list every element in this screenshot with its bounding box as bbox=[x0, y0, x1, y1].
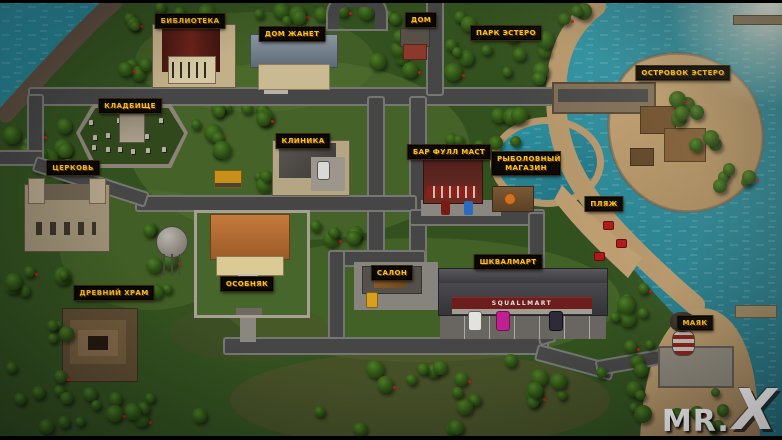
palm-tree-icon bbox=[454, 372, 468, 386]
map-label-bar-full-mast[interactable]: БАР ФУЛЛ МАСТ bbox=[408, 145, 490, 159]
palm-tree-icon bbox=[638, 308, 648, 318]
logo-x-text: X bbox=[733, 389, 776, 434]
palm-tree-icon bbox=[57, 143, 72, 158]
palm-tree-icon bbox=[617, 296, 635, 314]
palm-tree-icon bbox=[456, 398, 473, 415]
palm-tree-icon bbox=[256, 111, 271, 126]
flower-icon bbox=[649, 290, 652, 293]
palm-tree-icon bbox=[377, 376, 393, 392]
map-label-ancient-temple[interactable]: ДРЕВНИЙ ХРАМ bbox=[74, 286, 153, 300]
dark-car bbox=[549, 311, 563, 331]
palm-tree-icon bbox=[703, 130, 719, 146]
palm-tree-icon bbox=[118, 62, 132, 76]
palm-tree-icon bbox=[454, 135, 464, 145]
palm-tree-icon bbox=[292, 10, 306, 24]
palm-tree-icon bbox=[417, 363, 429, 375]
map-label-house[interactable]: ДОМ bbox=[406, 13, 436, 27]
red-car bbox=[441, 201, 450, 215]
blue-car bbox=[464, 201, 473, 215]
palm-tree-icon bbox=[634, 405, 652, 423]
bridge-road bbox=[558, 89, 648, 102]
palm-tree-icon bbox=[75, 417, 84, 426]
palm-tree-icon bbox=[83, 387, 97, 401]
tombstone-icon bbox=[146, 148, 150, 153]
map-label-park-estero[interactable]: ПАРК ЭСТЕРО bbox=[471, 26, 541, 40]
map-label-fishing-shop[interactable]: РЫБОЛОВНЫЙ МАГАЗИН bbox=[492, 152, 560, 175]
mansion-gate bbox=[236, 308, 262, 315]
red-buggy bbox=[603, 221, 614, 230]
mr-x-logo: MR. X bbox=[662, 389, 776, 434]
flower-icon bbox=[637, 348, 640, 351]
palm-tree-icon bbox=[310, 220, 321, 231]
palm-tree-icon bbox=[191, 119, 201, 129]
flower-icon bbox=[149, 421, 152, 424]
tombstone-icon bbox=[162, 147, 166, 152]
palm-tree-icon bbox=[452, 47, 462, 57]
palm-tree-icon bbox=[571, 5, 583, 17]
bulldozer bbox=[214, 170, 242, 188]
map-label-lighthouse[interactable]: МАЯК bbox=[677, 316, 712, 330]
tombstone-icon bbox=[93, 135, 97, 140]
tombstone-icon bbox=[89, 120, 93, 125]
letterbox-bottom bbox=[0, 436, 782, 440]
flower-icon bbox=[123, 415, 126, 418]
palm-tree-icon bbox=[448, 420, 463, 435]
palm-tree-icon bbox=[3, 126, 20, 143]
flower-icon bbox=[462, 74, 465, 77]
palm-tree-icon bbox=[124, 403, 140, 419]
palm-tree-icon bbox=[635, 390, 645, 400]
road-top-curve bbox=[328, 0, 386, 29]
palm-tree-icon bbox=[406, 374, 417, 385]
mansion-roof bbox=[210, 214, 290, 260]
palm-tree-icon bbox=[192, 408, 207, 423]
palm-tree-icon bbox=[558, 13, 571, 26]
road-west-vertical bbox=[29, 96, 42, 158]
letterbox-top bbox=[0, 0, 782, 3]
palm-tree-icon bbox=[557, 390, 566, 399]
map-label-cemetery[interactable]: КЛАДБИЩЕ bbox=[99, 99, 161, 113]
palm-tree-icon bbox=[444, 63, 462, 81]
palm-tree-icon bbox=[6, 362, 17, 373]
church-tower-left bbox=[28, 178, 45, 204]
palm-tree-icon bbox=[213, 105, 226, 118]
palm-tree-icon bbox=[328, 227, 339, 238]
palm-tree-icon bbox=[241, 103, 252, 114]
road-center-vertical-west bbox=[369, 98, 383, 264]
palm-tree-icon bbox=[346, 231, 360, 245]
palm-tree-icon bbox=[260, 170, 272, 182]
palm-tree-icon bbox=[624, 340, 637, 353]
map-label-estero-islet[interactable]: ОСТРОВОК ЭСТЕРО bbox=[636, 66, 729, 80]
logo-mr-text: MR. bbox=[662, 410, 730, 434]
palm-tree-icon bbox=[452, 387, 463, 398]
palm-tree-icon bbox=[532, 72, 546, 86]
palm-tree-icon bbox=[57, 118, 73, 134]
flower-icon bbox=[67, 378, 70, 381]
tombstone-icon bbox=[106, 147, 110, 152]
tombstone-icon bbox=[118, 147, 122, 152]
map-label-salon[interactable]: САЛОН bbox=[372, 266, 412, 280]
road-mid-horizontal bbox=[137, 197, 415, 210]
road-mansion-vertical bbox=[330, 252, 343, 348]
palm-tree-icon bbox=[504, 354, 516, 366]
map-label-squallmart[interactable]: ШКВАЛМАРТ bbox=[475, 255, 542, 269]
red-buggy bbox=[616, 239, 627, 248]
flower-icon bbox=[271, 120, 274, 123]
church-arches bbox=[36, 222, 96, 235]
mansion-facade bbox=[216, 256, 284, 276]
palm-tree-icon bbox=[353, 422, 366, 435]
map-label-janet-house[interactable]: ДОМ ЖАНЕТ bbox=[260, 27, 325, 41]
magenta-car bbox=[496, 311, 510, 331]
palm-tree-icon bbox=[60, 392, 72, 404]
game-map-screen: SQUALLMART БИБЛИОТЕКА ДОМ ЖАНЕТ ДОМ ПАРК… bbox=[0, 0, 782, 440]
palm-tree-icon bbox=[24, 266, 35, 277]
temple-entrance bbox=[88, 336, 108, 350]
palm-tree-icon bbox=[5, 273, 22, 290]
janet-house-walls bbox=[258, 64, 330, 90]
beach-umbrella-icon bbox=[504, 193, 516, 205]
cemetery-chapel bbox=[119, 109, 145, 143]
palm-tree-icon bbox=[59, 270, 68, 279]
palm-tree-icon bbox=[690, 105, 705, 120]
palm-tree-icon bbox=[48, 333, 58, 343]
yellow-car bbox=[366, 292, 378, 308]
palm-tree-icon bbox=[314, 406, 324, 416]
bar-storefront bbox=[427, 186, 477, 198]
palm-tree-icon bbox=[91, 400, 101, 410]
palm-tree-icon bbox=[39, 419, 54, 434]
lighthouse-fort bbox=[658, 346, 734, 388]
palm-tree-icon bbox=[511, 107, 528, 124]
palm-tree-icon bbox=[481, 45, 492, 56]
islet-pier-south bbox=[735, 305, 777, 318]
palm-tree-icon bbox=[638, 283, 649, 294]
palm-tree-icon bbox=[550, 373, 567, 390]
islet-shed bbox=[630, 148, 654, 166]
tombstone-icon bbox=[145, 134, 149, 139]
palm-tree-icon bbox=[366, 360, 384, 378]
squallmart-parking bbox=[440, 314, 606, 339]
map-label-mansion[interactable]: ОСОБНЯК bbox=[221, 277, 273, 291]
library-columns bbox=[172, 62, 210, 78]
map-label-church[interactable]: ЦЕРКОВЬ bbox=[47, 161, 99, 175]
water-tower-legs bbox=[163, 254, 180, 276]
road-south-horizontal bbox=[225, 339, 547, 353]
palm-tree-icon bbox=[254, 9, 264, 19]
palm-tree-icon bbox=[510, 136, 521, 147]
flower-icon bbox=[306, 16, 309, 19]
palm-tree-icon bbox=[713, 179, 727, 193]
palm-tree-icon bbox=[54, 370, 66, 382]
map-label-clinic[interactable]: КЛИНИКА bbox=[276, 134, 329, 148]
pier-north bbox=[733, 15, 782, 25]
flower-icon bbox=[35, 273, 38, 276]
church-tower-right bbox=[89, 178, 106, 204]
palm-tree-icon bbox=[634, 363, 648, 377]
palm-tree-icon bbox=[213, 141, 231, 159]
palm-tree-icon bbox=[369, 53, 386, 70]
tombstone-icon bbox=[131, 149, 135, 154]
tombstone-icon bbox=[92, 145, 96, 150]
tombstone-icon bbox=[159, 118, 163, 123]
palm-tree-icon bbox=[502, 67, 511, 76]
small-house-walls bbox=[403, 44, 427, 60]
white-car bbox=[468, 311, 482, 331]
palm-tree-icon bbox=[513, 48, 525, 60]
palm-tree-icon bbox=[59, 326, 74, 341]
palm-tree-icon bbox=[723, 163, 736, 176]
white-car bbox=[317, 161, 330, 180]
palm-tree-icon bbox=[106, 405, 123, 422]
flower-icon bbox=[44, 136, 47, 139]
lighthouse-tower bbox=[672, 330, 695, 356]
map-label-library[interactable]: БИБЛИОТЕКА bbox=[156, 14, 225, 28]
red-buggy bbox=[594, 252, 605, 261]
palm-tree-icon bbox=[109, 392, 123, 406]
palm-tree-icon bbox=[130, 21, 140, 31]
palm-tree-icon bbox=[58, 416, 69, 427]
palm-tree-icon bbox=[489, 136, 502, 149]
tombstone-icon bbox=[106, 133, 110, 138]
map-label-beach[interactable]: ПЛЯЖ bbox=[585, 197, 622, 211]
